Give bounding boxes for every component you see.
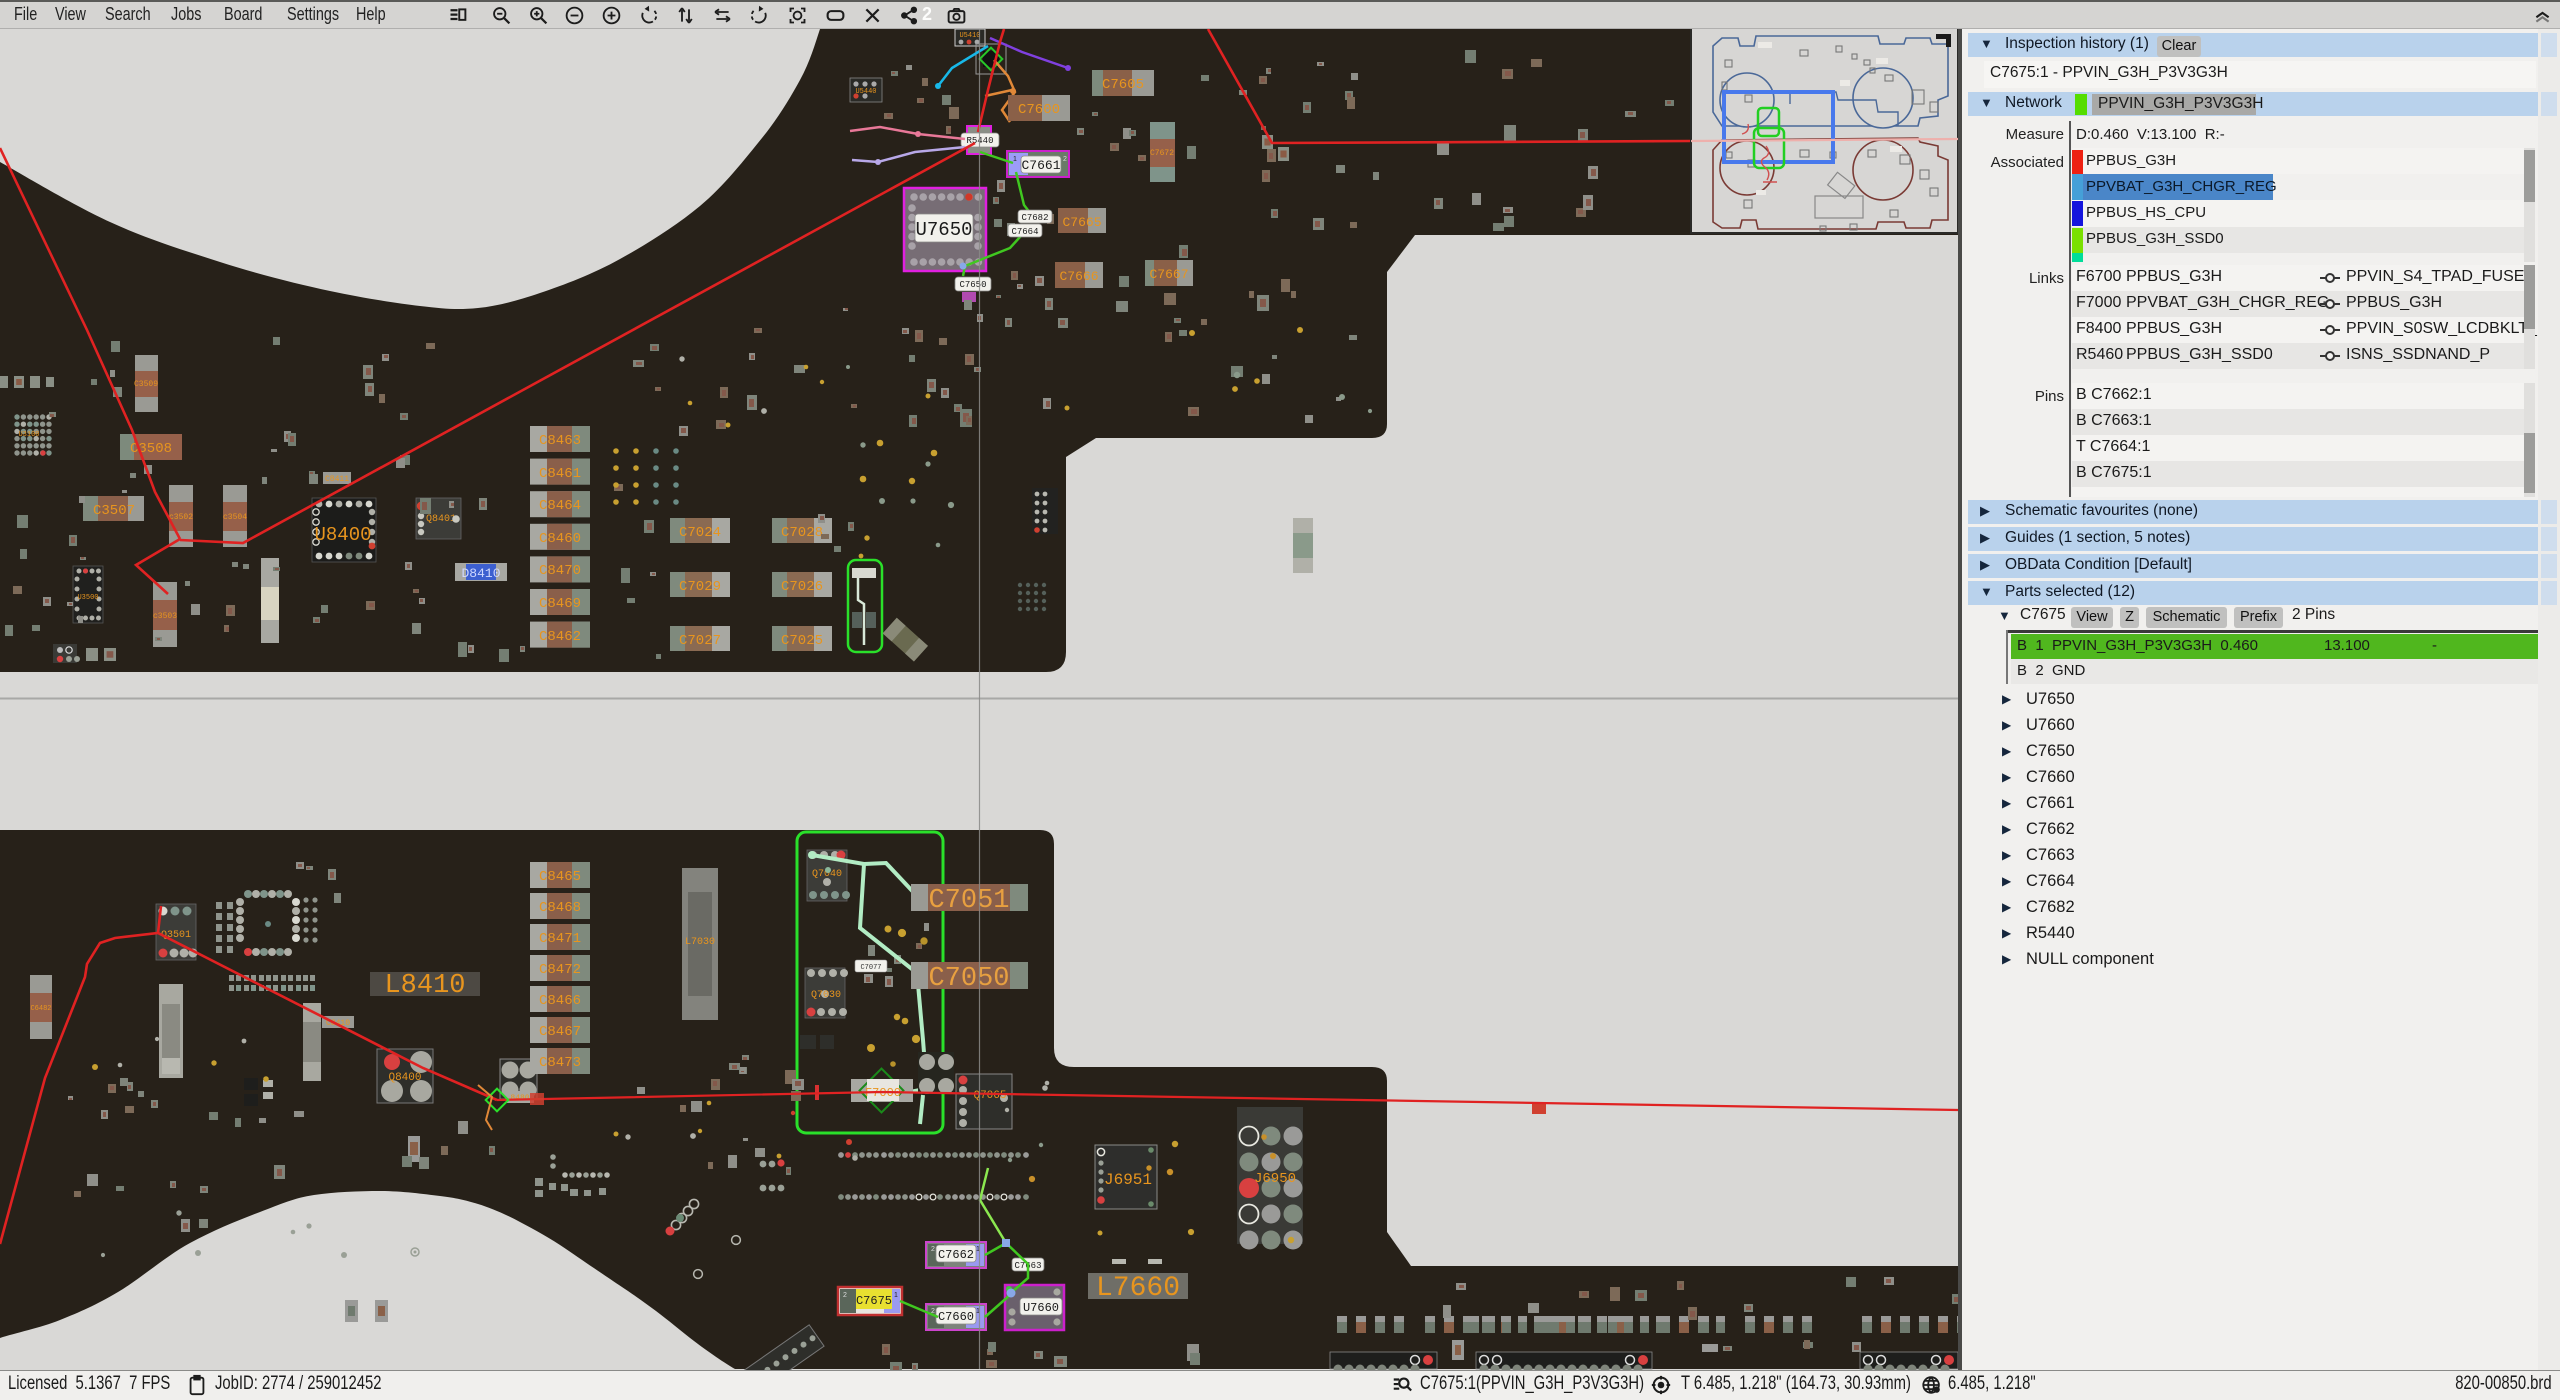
svg-text:C7600: C7600 [1018, 102, 1060, 118]
svg-text:U7660: U7660 [1023, 1301, 1059, 1315]
svg-text:C8472: C8472 [539, 962, 581, 978]
svg-text:C7666: C7666 [1059, 269, 1098, 284]
svg-text:Q7030: Q7030 [811, 990, 841, 1001]
svg-text:U5410: U5410 [959, 32, 980, 40]
svg-text:C7650: C7650 [959, 280, 986, 290]
svg-text:C8462: C8462 [539, 629, 581, 645]
svg-text:C8469: C8469 [539, 596, 581, 612]
svg-text:C3507: C3507 [93, 503, 135, 519]
svg-text:Q8400: Q8400 [388, 1072, 421, 1084]
svg-text:C7025: C7025 [781, 633, 823, 649]
svg-text:Q7065: Q7065 [973, 1090, 1006, 1102]
svg-text:C7662: C7662 [938, 1248, 974, 1262]
svg-text:C8465: C8465 [539, 869, 581, 885]
svg-text:C8463: C8463 [539, 433, 581, 449]
svg-text:C8467: C8467 [539, 1024, 581, 1040]
svg-text:C7605: C7605 [1102, 77, 1144, 93]
svg-text:U8400: U8400 [314, 524, 371, 546]
svg-text:C7028: C7028 [781, 525, 823, 541]
svg-text:1: 1 [1013, 156, 1017, 163]
svg-text:C7665: C7665 [1062, 215, 1101, 230]
svg-text:c3503: c3503 [153, 612, 177, 621]
svg-text:J6950: J6950 [1254, 1171, 1296, 1187]
svg-text:C7672: C7672 [1150, 149, 1174, 158]
svg-text:C7027: C7027 [679, 633, 721, 649]
svg-text:C7024: C7024 [679, 525, 721, 541]
svg-text:U7650: U7650 [915, 219, 972, 241]
svg-text:C7682: C7682 [1021, 213, 1048, 223]
svg-text:C7661: C7661 [1021, 158, 1060, 173]
svg-text:D8410: D8410 [461, 566, 500, 581]
svg-text:U3100: U3100 [18, 431, 39, 439]
svg-text:Q8401: Q8401 [426, 514, 456, 525]
svg-text:C7660: C7660 [938, 1310, 974, 1324]
svg-text:C7077: C7077 [860, 964, 881, 972]
svg-text:L7660: L7660 [1096, 1273, 1180, 1304]
svg-text:c3504: c3504 [223, 513, 247, 522]
svg-text:L8410: L8410 [384, 971, 465, 1001]
svg-text:1: 1 [894, 1292, 898, 1299]
svg-text:C8466: C8466 [539, 993, 581, 1009]
svg-text:c3502: c3502 [169, 513, 193, 522]
svg-text:C3509: C3509 [134, 380, 158, 389]
svg-text:J6951: J6951 [1104, 1171, 1152, 1189]
svg-text:C6482: C6482 [30, 1005, 51, 1013]
svg-text:C7675: C7675 [856, 1294, 892, 1308]
svg-text:L7030: L7030 [685, 937, 715, 948]
svg-text:C8460: C8460 [539, 531, 581, 547]
svg-text:C7026: C7026 [781, 579, 823, 595]
svg-text:C7667: C7667 [1149, 267, 1188, 282]
svg-text:C7050: C7050 [928, 964, 1009, 994]
svg-text:C8471: C8471 [539, 931, 581, 947]
svg-text:C8461: C8461 [539, 466, 581, 482]
svg-text:2: 2 [1063, 156, 1067, 163]
svg-text:C8470: C8470 [539, 563, 581, 579]
svg-text:2: 2 [931, 1246, 935, 1253]
svg-text:C8411: C8411 [325, 475, 349, 484]
svg-text:C8464: C8464 [539, 498, 581, 514]
svg-text:2: 2 [843, 1292, 847, 1299]
svg-text:C7051: C7051 [928, 886, 1009, 916]
svg-text:U3500: U3500 [77, 594, 98, 602]
svg-text:C8468: C8468 [539, 900, 581, 916]
svg-text:C7029: C7029 [679, 579, 721, 595]
svg-text:C8473: C8473 [539, 1055, 581, 1071]
svg-text:U5440: U5440 [855, 88, 876, 96]
svg-text:C7664: C7664 [1011, 227, 1038, 237]
